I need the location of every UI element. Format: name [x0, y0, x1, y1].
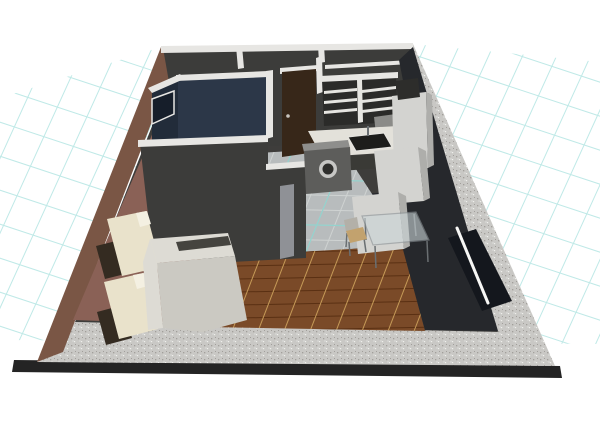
sofa-seat — [157, 256, 247, 332]
floor-plan-3d-view[interactable] — [0, 0, 600, 424]
chair-leg — [349, 242, 350, 256]
chair-leg — [346, 233, 347, 247]
door-partition-cap — [316, 56, 323, 94]
bathroom-back-wall — [178, 75, 266, 144]
fridge-top-box — [396, 78, 420, 100]
door-handle — [286, 114, 290, 118]
washer-door-glass — [323, 164, 334, 175]
bathroom-wall-cap — [266, 70, 273, 139]
sofa[interactable] — [143, 233, 247, 332]
table-leg — [427, 241, 428, 262]
interior-door-panel[interactable] — [280, 184, 294, 259]
table-glass-top — [362, 212, 429, 245]
table-leg — [375, 246, 376, 268]
washing-machine[interactable] — [302, 140, 352, 194]
